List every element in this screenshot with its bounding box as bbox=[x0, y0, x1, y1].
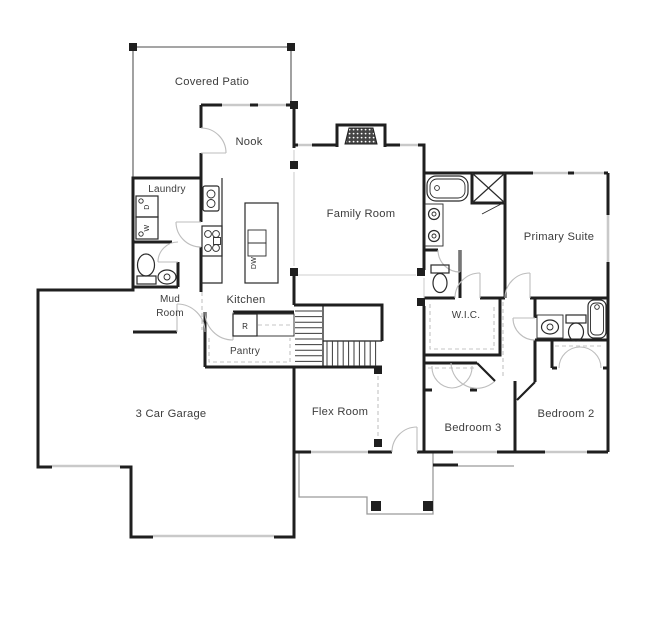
dishwasher-label: DW bbox=[251, 257, 258, 269]
open-edges bbox=[290, 101, 425, 447]
shower bbox=[472, 173, 505, 214]
bedroom3-door-leaf bbox=[477, 363, 495, 381]
dryer-label: D bbox=[144, 204, 151, 209]
room-label-primary-suite: Primary Suite bbox=[524, 231, 594, 243]
front-door bbox=[392, 427, 417, 452]
room-label-kitchen: Kitchen bbox=[226, 294, 265, 306]
room-label-wic: W.I.C. bbox=[452, 310, 480, 321]
fireplace bbox=[337, 125, 385, 147]
room-label-pantry: Pantry bbox=[230, 346, 260, 357]
room-label-mud-room-1: Mud bbox=[160, 294, 180, 305]
door-arcs bbox=[158, 128, 601, 452]
floor-plan-canvas: Covered Patio Nook Laundry Family Room P… bbox=[0, 0, 645, 622]
staircase bbox=[295, 305, 382, 367]
kitchen-island bbox=[245, 203, 278, 283]
windows bbox=[52, 105, 608, 536]
porch-column bbox=[371, 501, 381, 511]
room-label-nook: Nook bbox=[235, 136, 262, 148]
bedroom2-door-leaf bbox=[517, 382, 535, 400]
front-porch-outline bbox=[299, 453, 514, 514]
room-label-garage: 3 Car Garage bbox=[136, 408, 207, 420]
kitchen-counter bbox=[201, 178, 222, 283]
room-label-flex-room: Flex Room bbox=[312, 406, 368, 418]
dishwasher bbox=[248, 230, 266, 243]
laundry-appliances bbox=[136, 196, 158, 239]
hall-bath-fixtures bbox=[537, 300, 606, 341]
double-vanity bbox=[425, 204, 443, 246]
room-label-laundry: Laundry bbox=[148, 184, 186, 195]
room-label-mud-room-2: Room bbox=[156, 308, 183, 319]
range bbox=[202, 226, 222, 256]
half-bath-sink bbox=[158, 270, 176, 284]
room-label-family-room: Family Room bbox=[327, 208, 396, 220]
washer-label: W bbox=[144, 224, 151, 231]
primary-bath-fixtures bbox=[425, 173, 505, 293]
covered-patio-outline bbox=[129, 43, 295, 177]
half-bath-fixtures bbox=[137, 254, 176, 284]
half-bath-toilet bbox=[138, 254, 155, 276]
toilet-water-closet bbox=[431, 265, 449, 293]
room-label-bedroom2: Bedroom 2 bbox=[538, 408, 595, 420]
porch-column bbox=[423, 501, 433, 511]
room-label-covered-patio: Covered Patio bbox=[175, 76, 249, 88]
hall-bath-toilet bbox=[566, 315, 586, 323]
floor-plan-page: Covered Patio Nook Laundry Family Room P… bbox=[0, 0, 645, 622]
refrigerator-label: R bbox=[242, 322, 248, 331]
room-label-bedroom3: Bedroom 3 bbox=[445, 422, 502, 434]
